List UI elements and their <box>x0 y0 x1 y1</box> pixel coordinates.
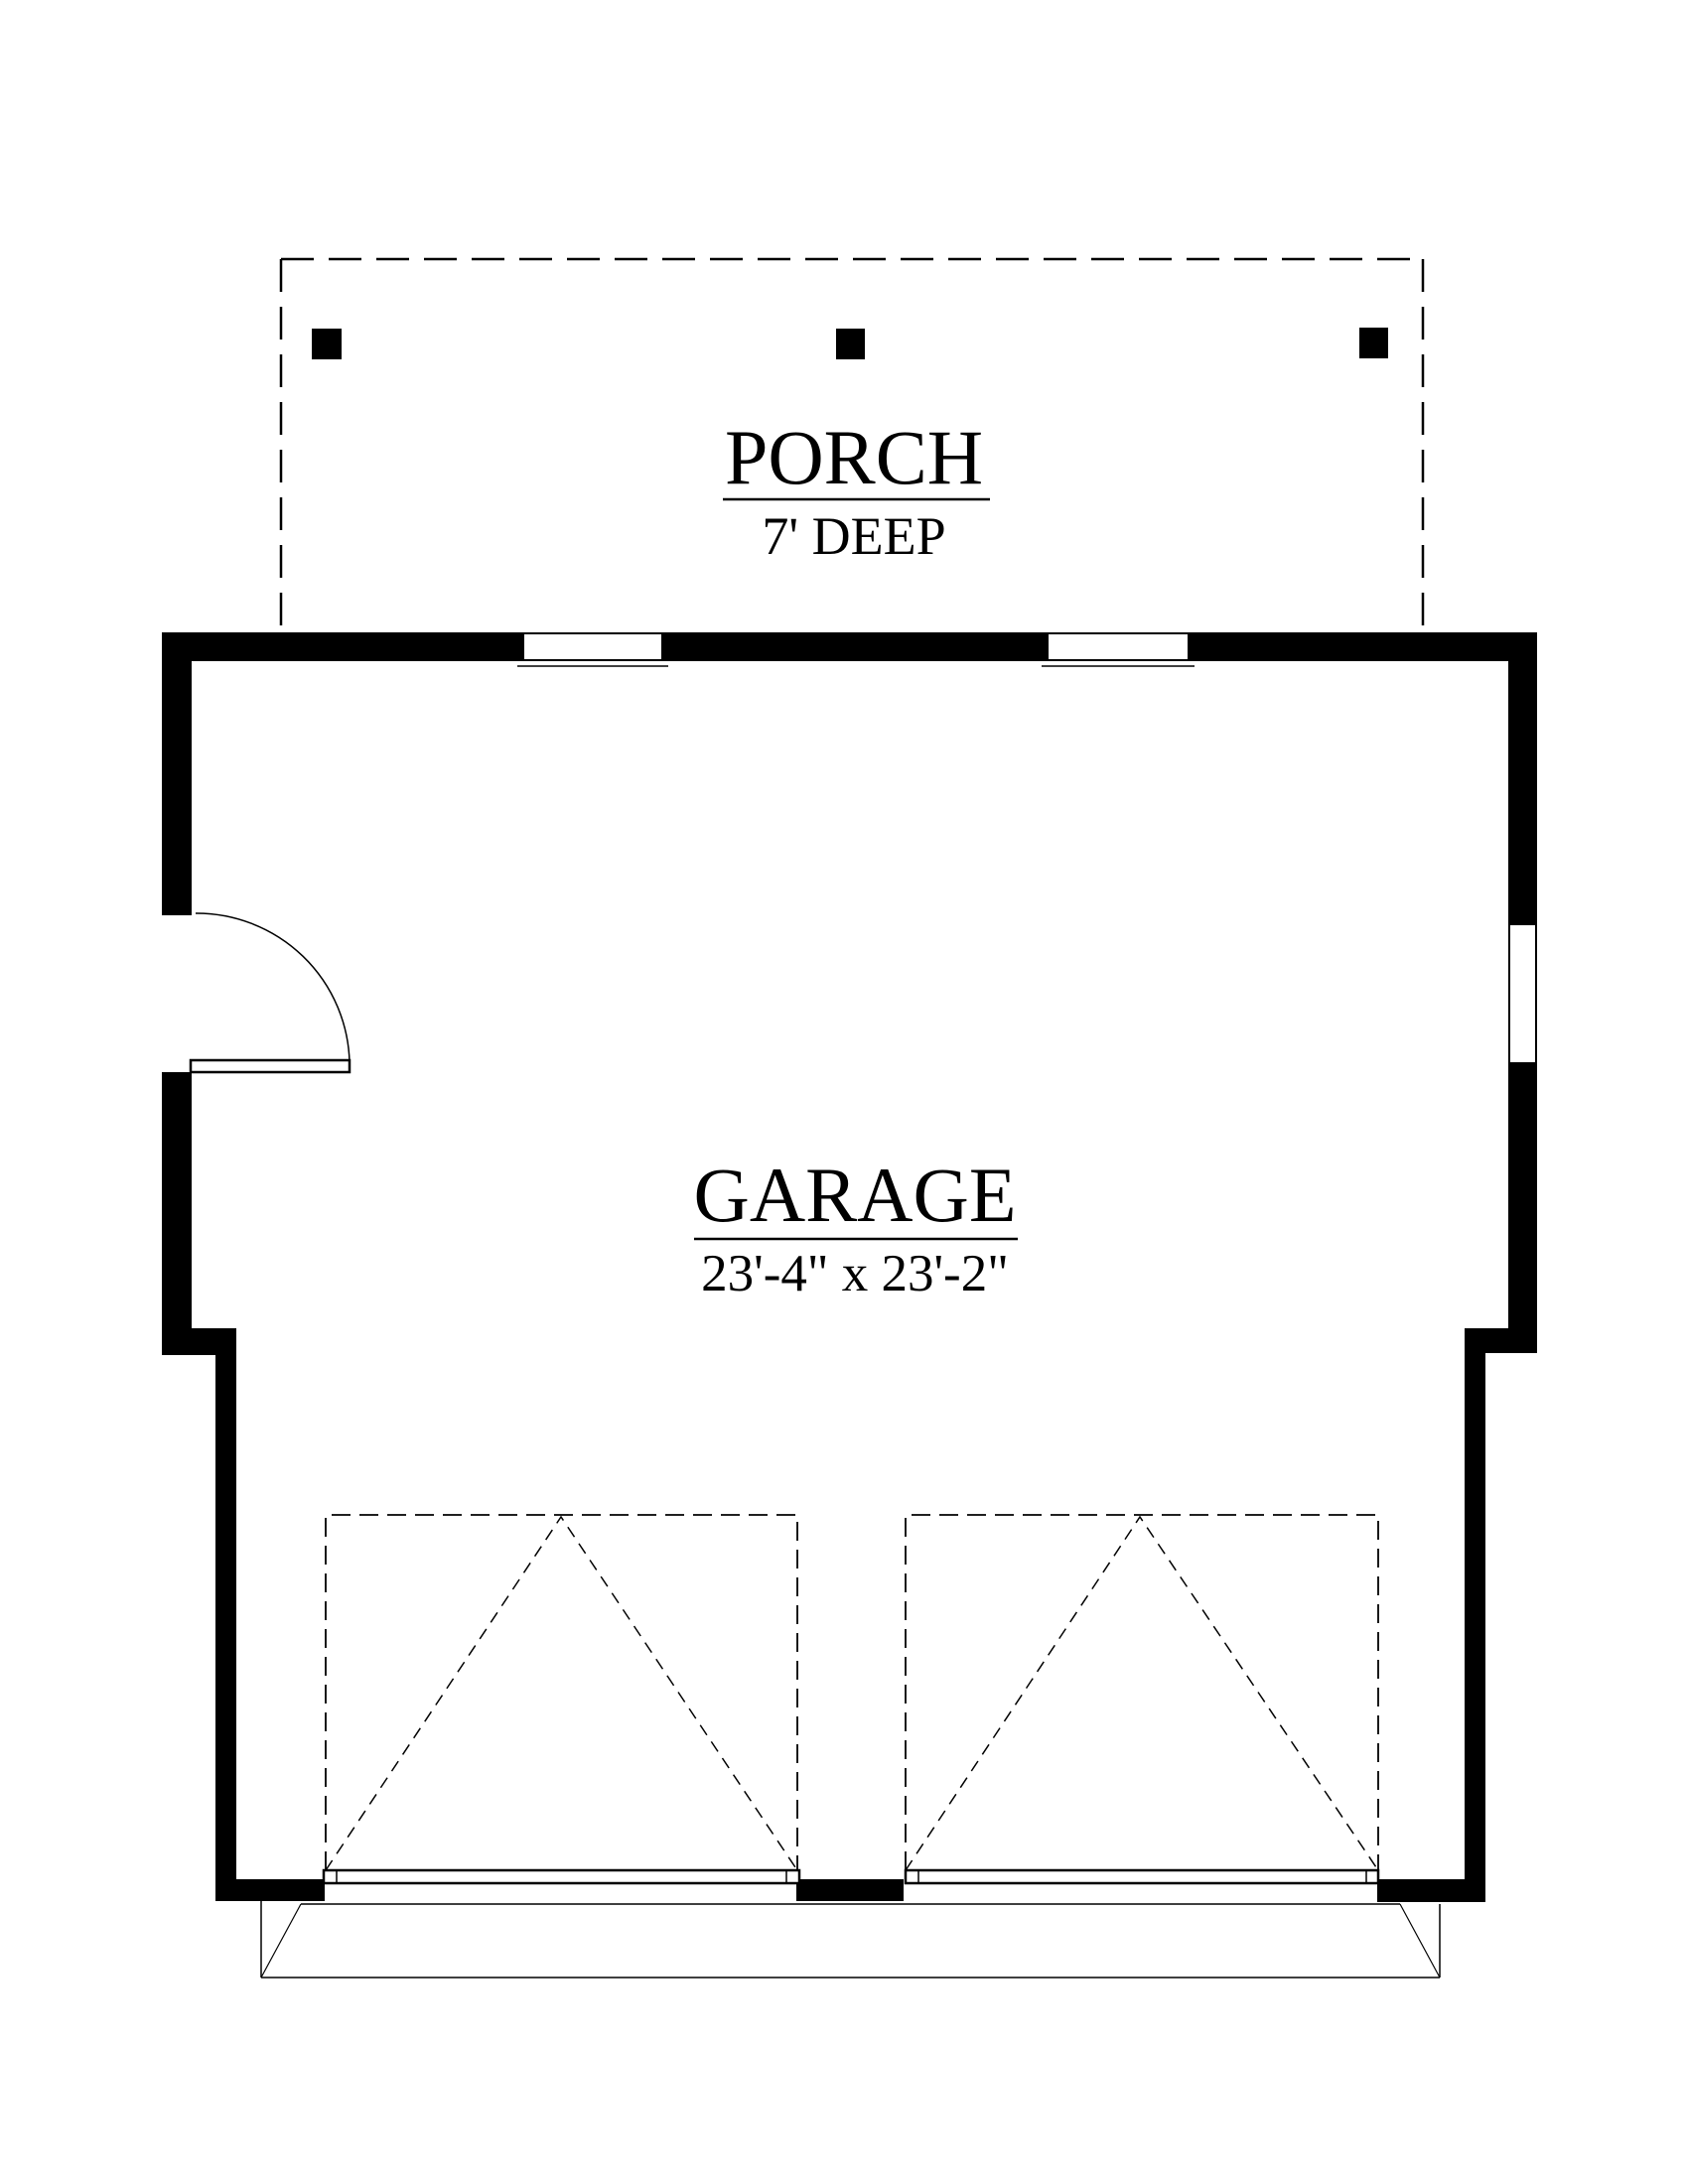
garage-door-left-swing <box>326 1517 797 1870</box>
garage-labels: GARAGE 23'-4" x 23'-2" <box>694 1152 1019 1302</box>
window-top-left <box>523 633 662 660</box>
door-leaf <box>191 1060 350 1072</box>
wall-bottom-left-stub <box>215 1879 325 1901</box>
floor-plan: PORCH 7' DEEP <box>0 0 1688 2184</box>
window-top-right <box>1048 633 1189 660</box>
garage-door-right-sill <box>906 1870 1378 1883</box>
windows <box>517 633 1536 1063</box>
porch-area: PORCH 7' DEEP <box>281 259 1423 632</box>
wall-left-mid <box>162 1072 192 1355</box>
garage-door-right-swing <box>906 1517 1378 1870</box>
wall-left-lower <box>215 1328 236 1901</box>
garage-door-right-outline <box>906 1515 1378 1870</box>
entry-door <box>191 913 350 1072</box>
porch-depth-label: 7' DEEP <box>762 506 945 566</box>
wall-right-lower <box>1465 1328 1485 1902</box>
porch-post-right <box>1359 328 1388 358</box>
driveway-apron <box>261 1901 1440 1978</box>
garage-door-left-sill <box>324 1870 799 1883</box>
apron-right-flare <box>1400 1904 1440 1978</box>
floor-plan-canvas: PORCH 7' DEEP <box>0 0 1688 2184</box>
garage-label: GARAGE <box>694 1152 1017 1238</box>
wall-right-mid <box>1508 1063 1537 1353</box>
wall-bottom-center-pier <box>796 1879 904 1901</box>
garage-door-left-outline <box>326 1515 797 1870</box>
wall-left-upper <box>162 655 192 915</box>
garage-dimensions-label: 23'-4" x 23'-2" <box>701 1245 1009 1302</box>
door-swing-arc <box>196 913 350 1062</box>
window-right-side <box>1509 924 1536 1063</box>
wall-bottom-right-stub <box>1377 1879 1485 1902</box>
wall-right-upper <box>1508 655 1537 924</box>
porch-post-left <box>312 329 342 359</box>
wall-top <box>162 632 1537 661</box>
apron-left-flare <box>261 1904 301 1978</box>
porch-post-center <box>836 329 865 359</box>
garage-door-right <box>906 1515 1378 1883</box>
garage-door-left <box>324 1515 799 1883</box>
porch-label: PORCH <box>725 414 983 500</box>
